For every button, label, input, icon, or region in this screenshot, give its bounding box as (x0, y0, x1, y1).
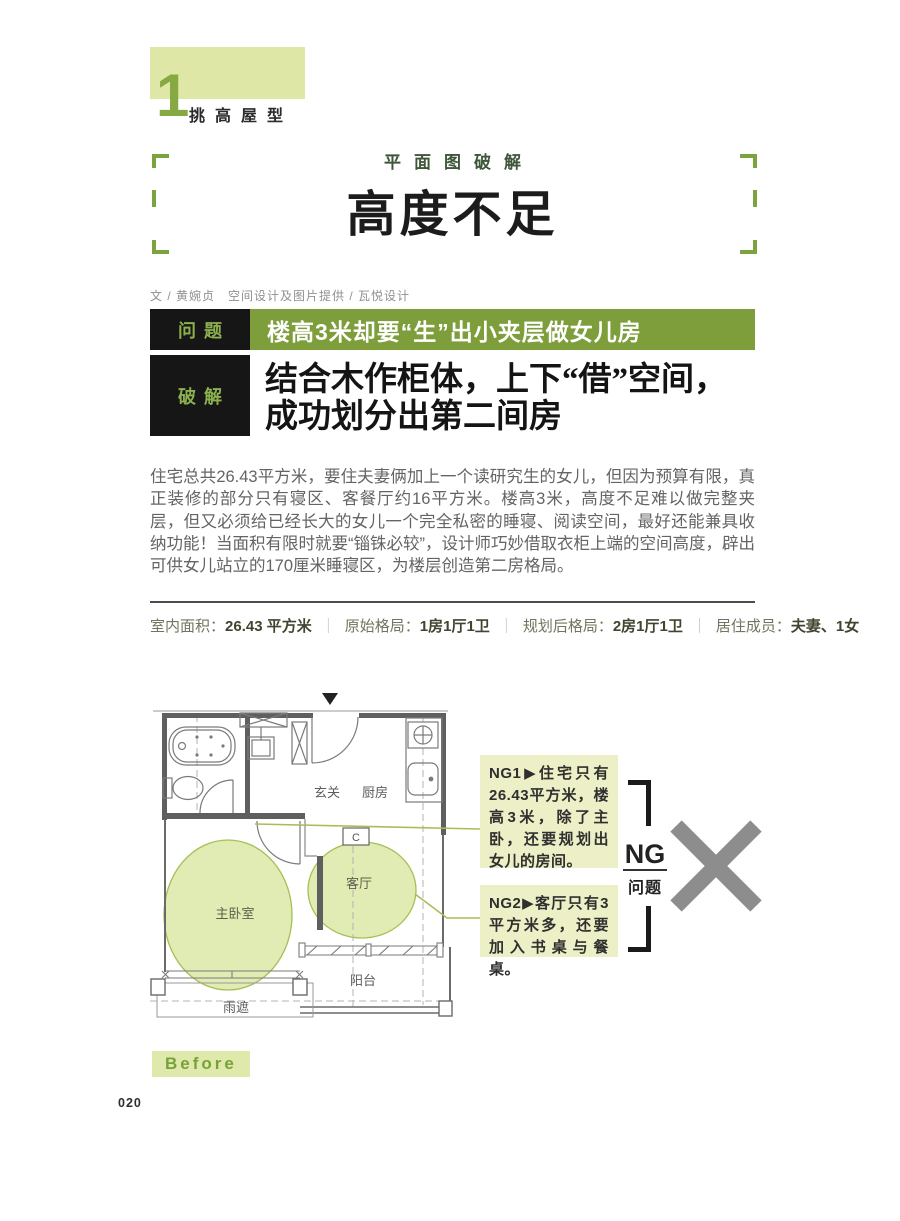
info-separator: ｜ (490, 618, 523, 635)
balcony-rail (299, 943, 443, 957)
problem-tag: 问题 (150, 309, 250, 350)
entry-arrow-icon (322, 693, 338, 705)
solution-headline: 结合木作柜体，上下“借”空间， 成功划分出第二间房 (265, 362, 755, 436)
ng2-leader (415, 894, 480, 918)
ng-big-label: NG (623, 840, 668, 871)
entry-door (312, 717, 358, 763)
living-label: 客厅 (346, 876, 372, 891)
solution-tag: 破解 (150, 355, 250, 436)
ng-bracket-bottom-icon (628, 906, 651, 952)
balcony-label: 阳台 (350, 973, 376, 988)
before-label: Before (152, 1051, 250, 1077)
c-label-box: C (343, 828, 369, 845)
canopy-label: 雨遮 (223, 1000, 249, 1015)
chapter-number: 1 (156, 66, 189, 126)
kitchen-label: 厨房 (362, 785, 388, 800)
info-separator: ｜ (683, 618, 716, 635)
info-value: 1房1厅1卫 (420, 618, 490, 635)
body-paragraph: 住宅总共26.43平方米，要住夫妻俩加上一个读研究生的女儿，但因为预算有限，真正… (150, 466, 755, 577)
page-title: 高度不足 (150, 175, 755, 246)
info-value: 夫妻、1女 (791, 618, 859, 635)
c-label: C (352, 832, 360, 844)
book-page: 1 挑高屋型 平面图破解 高度不足 文 / 黄婉贞 空间设计及图片提供 / 瓦悦… (0, 0, 900, 1221)
balcony-bottom-wall (300, 1007, 452, 1013)
page-number: 020 (118, 1096, 142, 1110)
section-kicker: 平面图破解 (150, 148, 755, 173)
entry-label: 玄关 (314, 785, 340, 800)
info-value: 26.43 平方米 (225, 618, 312, 635)
crossed-shaft (292, 722, 307, 764)
kitchen-sink (408, 763, 438, 795)
info-label: 原始格局： (345, 618, 420, 635)
info-label: 规划后格局： (523, 618, 613, 635)
ng2-note: NG2▶客厅只有3平方米多，还要加入书桌与餐桌。 (480, 885, 618, 957)
master-label: 主卧室 (215, 906, 254, 921)
info-label: 室内面积： (150, 618, 225, 635)
kitchen-counter (406, 718, 442, 802)
bathroom-door (200, 780, 233, 813)
ng1-note: NG1▶住宅只有26.43平方米，楼高3米，除了主卧，还要规划出女儿的房间。 (480, 755, 618, 868)
chapter-label: 挑高屋型 (189, 102, 293, 126)
info-separator: ｜ (312, 618, 345, 635)
ng-cross-icon (666, 816, 766, 916)
info-label: 居住成员： (716, 618, 791, 635)
rain-canopy (151, 979, 452, 1017)
info-value: 2房1厅1卫 (613, 618, 683, 635)
bedroom-window (162, 971, 303, 978)
unit-info-strip: 室内面积：26.43 平方米｜原始格局：1房1厅1卫｜规划后格局：2房1厅1卫｜… (150, 601, 755, 636)
ng-bracket-top-icon (628, 780, 651, 826)
credit-line: 文 / 黄婉贞 空间设计及图片提供 / 瓦悦设计 (150, 287, 410, 304)
washbasin (248, 727, 274, 759)
bathtub (169, 727, 235, 765)
problem-statement: 楼高3米却要“生”出小夹层做女儿房 (250, 309, 755, 350)
